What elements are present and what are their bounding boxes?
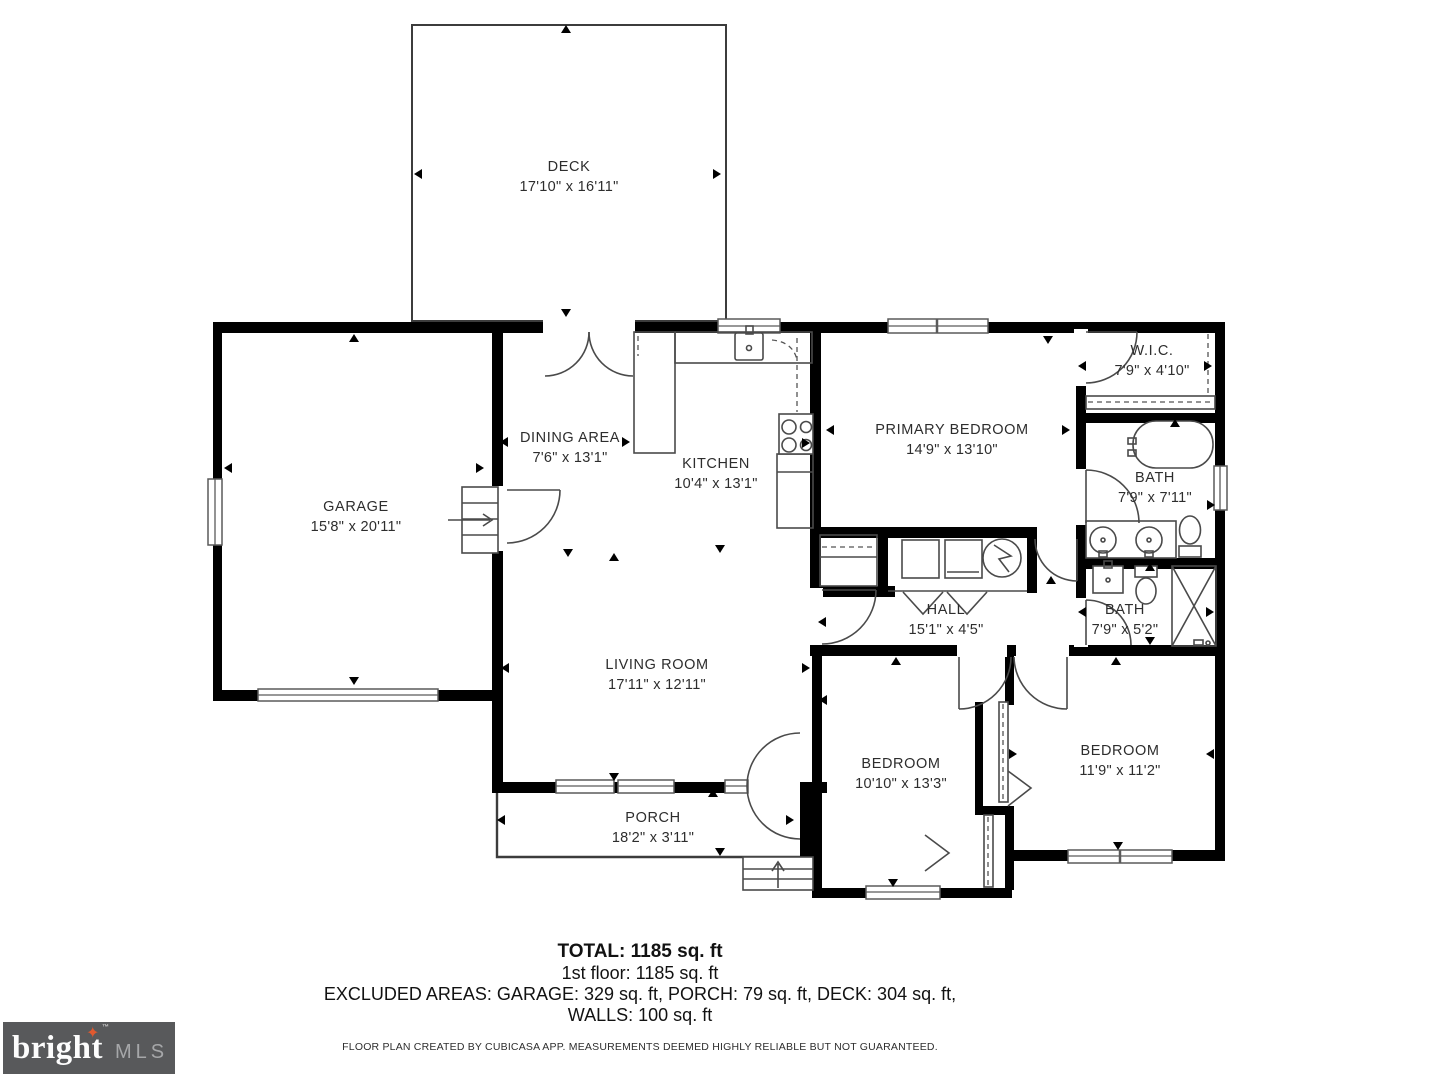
bedroom-window (866, 886, 940, 899)
living-room-window (618, 780, 674, 793)
living-room-window (725, 780, 748, 793)
garage-entry-door-swing (507, 490, 560, 543)
bath-window (1214, 466, 1227, 510)
garage-door (258, 689, 438, 701)
mls-text: MLS (115, 1041, 168, 1064)
bright-mls-wordmark: bright✦™ (12, 1032, 103, 1065)
walls-area-text: WALLS: 100 sq. ft (0, 1005, 1280, 1026)
primary-bedroom-window (888, 319, 988, 333)
room-label-bedroom-1: BEDROOM 10'10" x 13'3" (855, 756, 947, 792)
room-label-living-room: LIVING ROOM 17'11" x 12'11" (605, 657, 708, 693)
total-area-text: TOTAL: 1185 sq. ft (0, 941, 1280, 963)
bedroom-closet-icon (925, 815, 993, 887)
room-label-kitchen: KITCHEN 10'4" x 13'1" (674, 456, 757, 492)
porch-steps-icon (743, 857, 813, 890)
room-label-hall: HALL 15'1" x 4'5" (908, 602, 983, 638)
primary-bedroom-door-swing (1035, 539, 1077, 581)
washer-icon (902, 540, 939, 578)
water-heater-icon (983, 539, 1021, 577)
star-icon: ✦ (86, 1025, 100, 1041)
walls-layer (213, 322, 1225, 898)
excluded-areas-text: EXCLUDED AREAS: GARAGE: 329 sq. ft, PORC… (0, 984, 1280, 1005)
dryer-icon (945, 540, 982, 578)
living-room-window (556, 780, 614, 793)
garage-staircase-icon (448, 487, 498, 553)
hall-closet-icon (820, 535, 877, 586)
bedroom-window (1068, 850, 1172, 863)
room-label-bedroom-2: BEDROOM 11'9" x 11'2" (1079, 743, 1160, 779)
bathtub-icon (1128, 421, 1213, 468)
trademark-symbol: ™ (102, 1024, 109, 1031)
room-label-porch: PORCH 18'2" x 3'11" (612, 810, 694, 846)
room-label-bath-1: BATH 7'9" x 7'11" (1118, 470, 1192, 506)
french-door-swing (545, 332, 589, 376)
room-label-wic: W.I.C. 7'9" x 4'10" (1114, 343, 1189, 379)
stove-icon (779, 414, 813, 454)
area-summary: TOTAL: 1185 sq. ft 1st floor: 1185 sq. f… (0, 941, 1280, 1053)
room-label-primary-bedroom: PRIMARY BEDROOM 14'9" x 13'10" (875, 422, 1029, 458)
disclaimer-text: FLOOR PLAN CREATED BY CUBICASA APP. MEAS… (0, 1041, 1280, 1053)
french-door-swing (589, 332, 633, 376)
vanity-sinks-icon (1086, 521, 1176, 558)
floorplan-page: DECK 17'10" x 16'11" GARAGE 15'8" x 20'1… (0, 0, 1440, 1080)
shower-icon (1172, 566, 1216, 646)
toilet-icon (1179, 516, 1201, 557)
bath-sink-icon (1093, 561, 1123, 593)
garage-window (208, 479, 222, 545)
room-label-bath-2: BATH 7'9" x 5'2" (1092, 602, 1159, 638)
room-label-garage: GARAGE 15'8" x 20'11" (311, 499, 402, 535)
toilet-icon (1135, 566, 1157, 604)
bright-mls-logo: bright✦™ MLS (3, 1022, 175, 1074)
first-floor-area-text: 1st floor: 1185 sq. ft (0, 963, 1280, 984)
bedroom-door-swing (1014, 657, 1067, 709)
room-label-deck: DECK 17'10" x 16'11" (519, 159, 618, 195)
hall-door-swing (822, 590, 876, 644)
floorplan-drawing (0, 0, 1440, 1080)
room-label-dining-area: DINING AREA 7'6" x 13'1" (520, 430, 620, 466)
